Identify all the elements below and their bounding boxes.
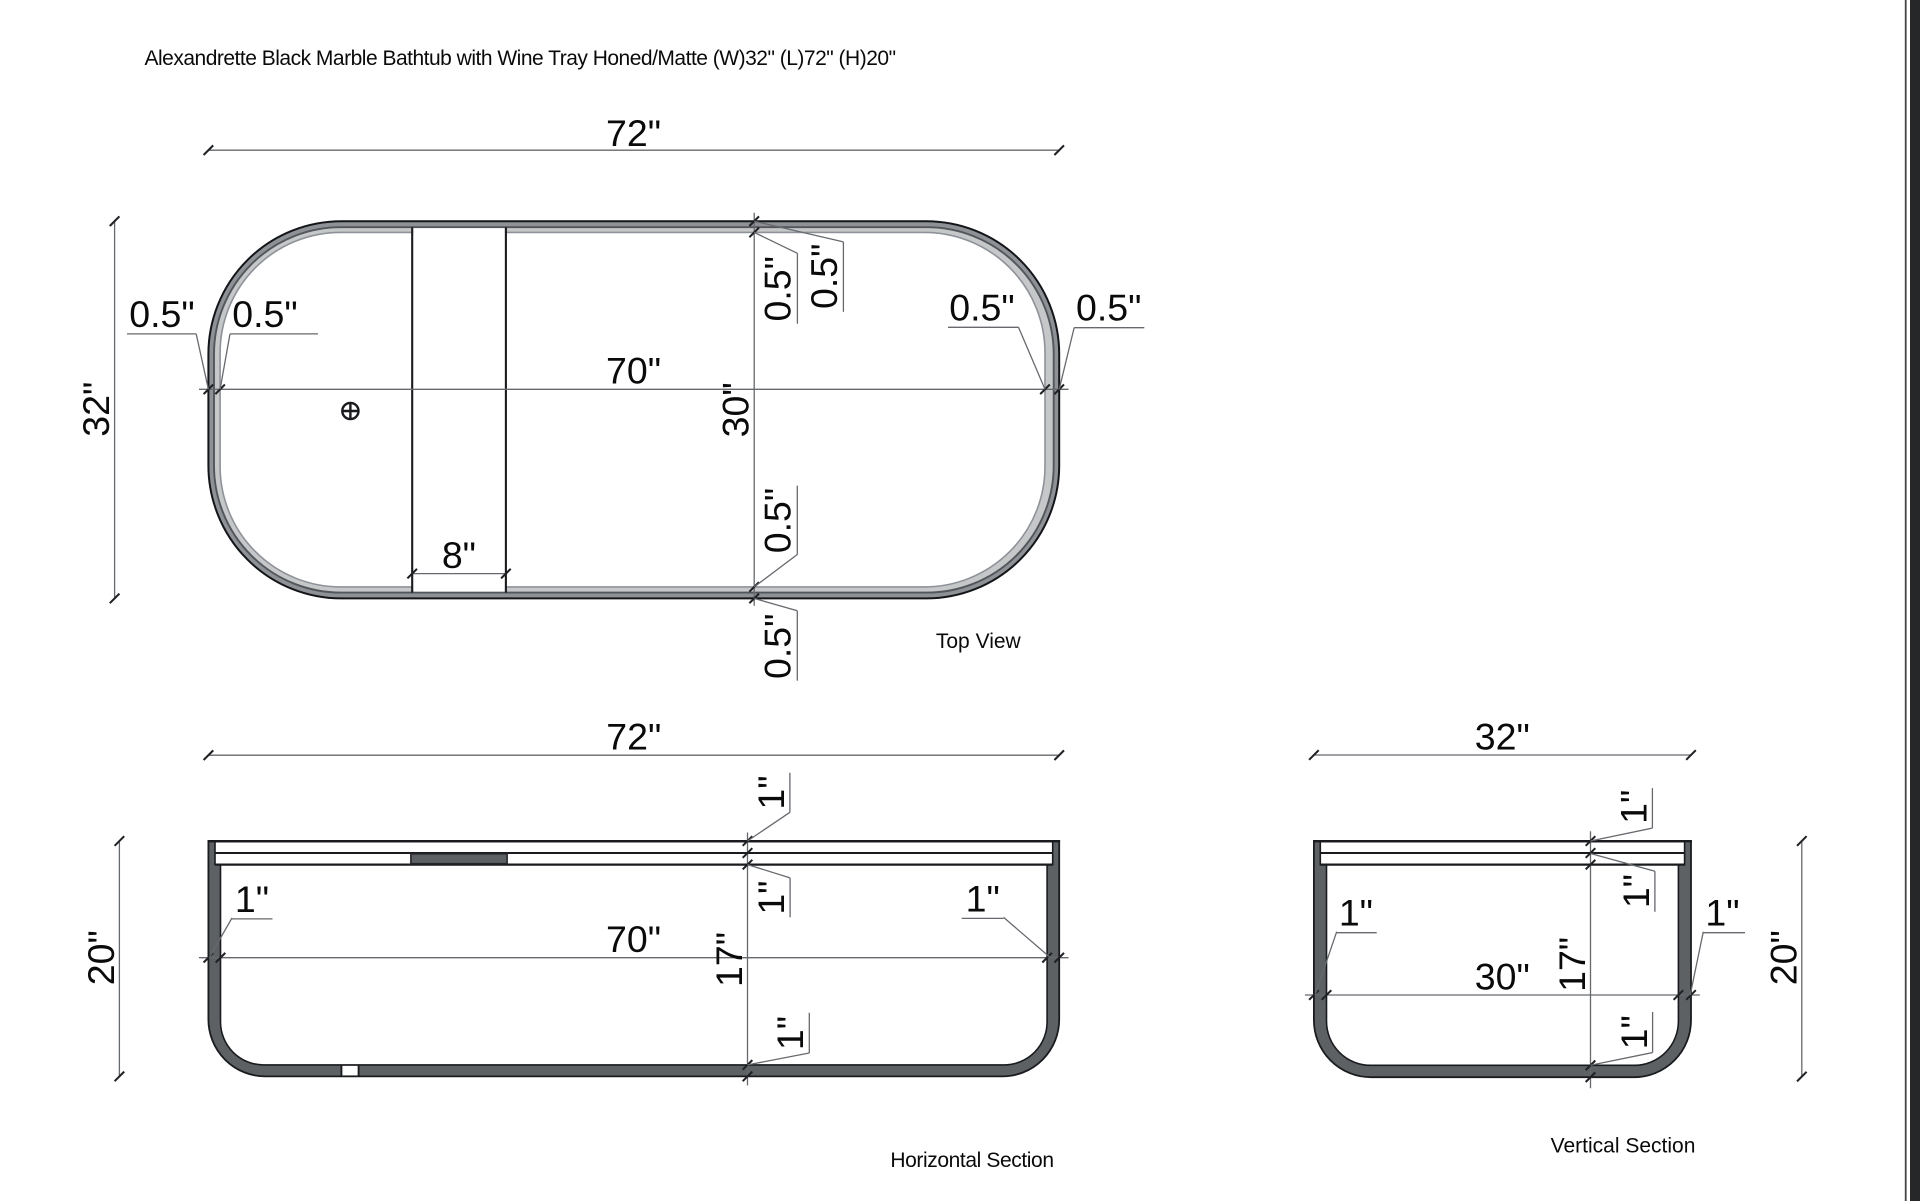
svg-text:8": 8" [442,534,476,576]
svg-text:0.5": 0.5" [803,244,845,309]
svg-text:20": 20" [80,930,122,985]
svg-text:17": 17" [708,932,750,987]
svg-text:1": 1" [1613,790,1655,824]
svg-text:Horizontal Section: Horizontal Section [890,1149,1053,1172]
svg-text:1": 1" [1339,892,1373,934]
svg-text:70": 70" [606,918,661,960]
svg-text:17": 17" [1551,937,1593,992]
svg-text:1": 1" [1615,874,1657,908]
svg-text:70": 70" [606,350,661,392]
svg-text:1": 1" [750,775,792,809]
svg-text:30": 30" [715,382,757,437]
svg-text:32": 32" [75,382,117,437]
svg-text:1": 1" [966,877,1000,919]
svg-text:1": 1" [769,1016,811,1050]
svg-text:1": 1" [1613,1015,1655,1049]
svg-text:72": 72" [606,112,661,154]
svg-text:Top View: Top View [936,630,1022,653]
svg-text:0.5": 0.5" [756,256,798,321]
svg-text:1": 1" [750,881,792,915]
svg-text:1": 1" [1705,892,1739,934]
svg-text:0.5": 0.5" [129,293,194,335]
svg-text:1": 1" [235,878,269,920]
svg-text:Vertical Section: Vertical Section [1551,1135,1696,1158]
svg-text:20": 20" [1762,930,1804,985]
svg-text:0.5": 0.5" [232,293,297,335]
svg-text:72": 72" [606,716,661,758]
svg-text:0.5": 0.5" [1076,287,1141,329]
svg-text:0.5": 0.5" [949,286,1014,328]
svg-text:0.5": 0.5" [756,488,798,553]
svg-text:30": 30" [1475,955,1530,997]
svg-text:Alexandrette Black Marble Bath: Alexandrette Black Marble Bathtub with W… [145,47,896,70]
svg-text:0.5": 0.5" [756,614,798,679]
svg-text:32": 32" [1475,715,1530,757]
